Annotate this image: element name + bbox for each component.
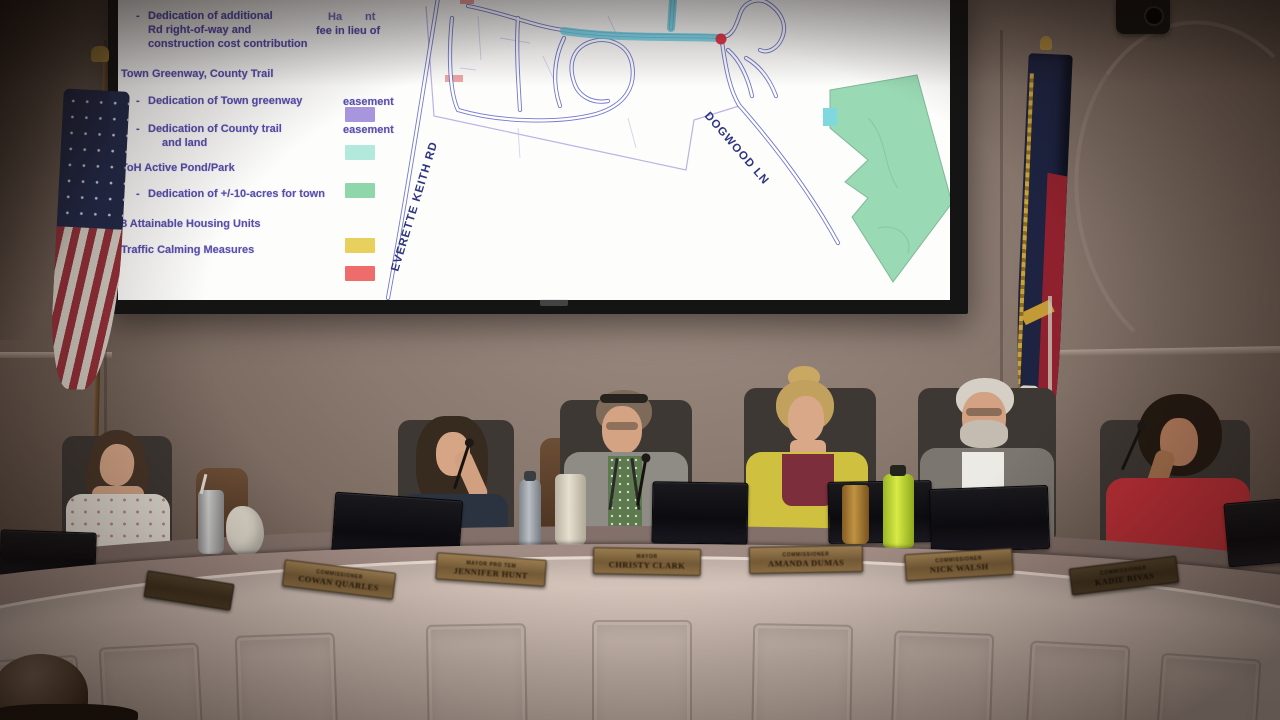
slide-bullet3: Dedication of County trail <box>148 123 282 135</box>
nameplate-mayor: MAYOR CHRISTY CLARK <box>593 547 701 576</box>
projection-screen: - Dedication of additional Ha nt Rd righ… <box>108 0 968 314</box>
slide-bullet1-line2: Rd right-of-way and <box>148 24 251 36</box>
projector-screen-logo <box>540 299 568 306</box>
nameplate-name: CHRISTY CLARK <box>609 559 686 570</box>
us-flag-canton <box>57 88 130 229</box>
slide-bullet1-line1: Dedication of additional <box>148 10 273 22</box>
slide-bullet1-frag-a: Ha <box>328 11 342 23</box>
eagle-finial <box>91 46 109 62</box>
map-pink-parcel <box>445 75 463 82</box>
steel-bottle <box>519 479 541 547</box>
eyeglasses <box>966 408 1002 416</box>
map-cyan-patch <box>823 108 837 126</box>
face <box>602 406 642 454</box>
map-label-everette-keith-rd: EVERETTE KEITH RD <box>389 140 440 273</box>
amber-tumbler <box>842 485 869 544</box>
us-flag-drape <box>48 88 130 391</box>
beard <box>960 420 1008 448</box>
map-cyan-road <box>671 0 673 28</box>
monitor <box>651 481 748 545</box>
flag-finial <box>1040 36 1052 50</box>
slide-heading-pond-park: ToH Active Pond/Park <box>121 162 235 174</box>
sunglasses-on-head <box>600 394 648 403</box>
slide-heading-greenway: Town Greenway, County Trail <box>121 68 273 80</box>
bullet-dash: - <box>136 95 140 107</box>
slide-heading-housing: 8 Attainable Housing Units <box>121 218 261 230</box>
presentation-slide: - Dedication of additional Ha nt Rd righ… <box>118 0 950 300</box>
slide-bullet1-line3: construction cost contribution <box>148 38 308 50</box>
dais-panel <box>890 630 995 720</box>
site-plan-map: EVERETTE KEITH RD DOGWOOD LN <box>368 0 950 300</box>
dais-panel <box>235 632 340 720</box>
map-green-area <box>830 75 950 282</box>
bullet-dash: - <box>136 188 140 200</box>
slide-heading-traffic: Traffic Calming Measures <box>121 244 254 256</box>
nameplate-name: AMANDA DUMAS <box>768 557 845 568</box>
monitor <box>929 485 1050 553</box>
dais-panel <box>426 623 528 720</box>
map-label-dogwood-ln: DOGWOOD LN <box>702 110 771 187</box>
audience-member-shoulder <box>0 704 138 720</box>
map-roads <box>388 0 838 298</box>
camera-lens-icon <box>1144 6 1164 26</box>
maroon-top <box>782 454 834 506</box>
us-flag-stripes <box>48 226 122 391</box>
ptz-camera <box>1116 0 1170 34</box>
face <box>788 396 824 442</box>
bullet-dash: - <box>136 123 140 135</box>
council-chamber-scene: - Dedication of additional Ha nt Rd righ… <box>0 0 1280 720</box>
eyeglasses <box>606 422 638 430</box>
monitor <box>1223 499 1280 568</box>
nameplate-name: JENNIFER HUNT <box>453 565 528 580</box>
slide-bullet2: Dedication of Town greenway <box>148 95 302 107</box>
dais-panel <box>751 623 853 720</box>
silver-tumbler <box>198 490 224 554</box>
nameplate-name: NICK WALSH <box>929 561 988 575</box>
dais-panel <box>1152 653 1261 720</box>
slide-bullet3-line2: and land <box>162 137 207 149</box>
slide-bullet4: Dedication of +/-10-acres for town <box>148 188 325 200</box>
map-red-dot <box>716 34 727 45</box>
dais-panel <box>592 620 692 720</box>
bullet-dash: - <box>136 10 140 22</box>
cream-tumbler <box>555 474 586 546</box>
dais-panel <box>1024 640 1131 720</box>
yellow-water-bottle <box>883 474 914 548</box>
map-cyan-road <box>564 31 719 38</box>
map-red-parcel <box>460 0 474 4</box>
us-flag <box>44 46 134 466</box>
nameplate-dumas: COMMISSIONER AMANDA DUMAS <box>749 545 863 574</box>
paper-tissue <box>226 506 264 556</box>
